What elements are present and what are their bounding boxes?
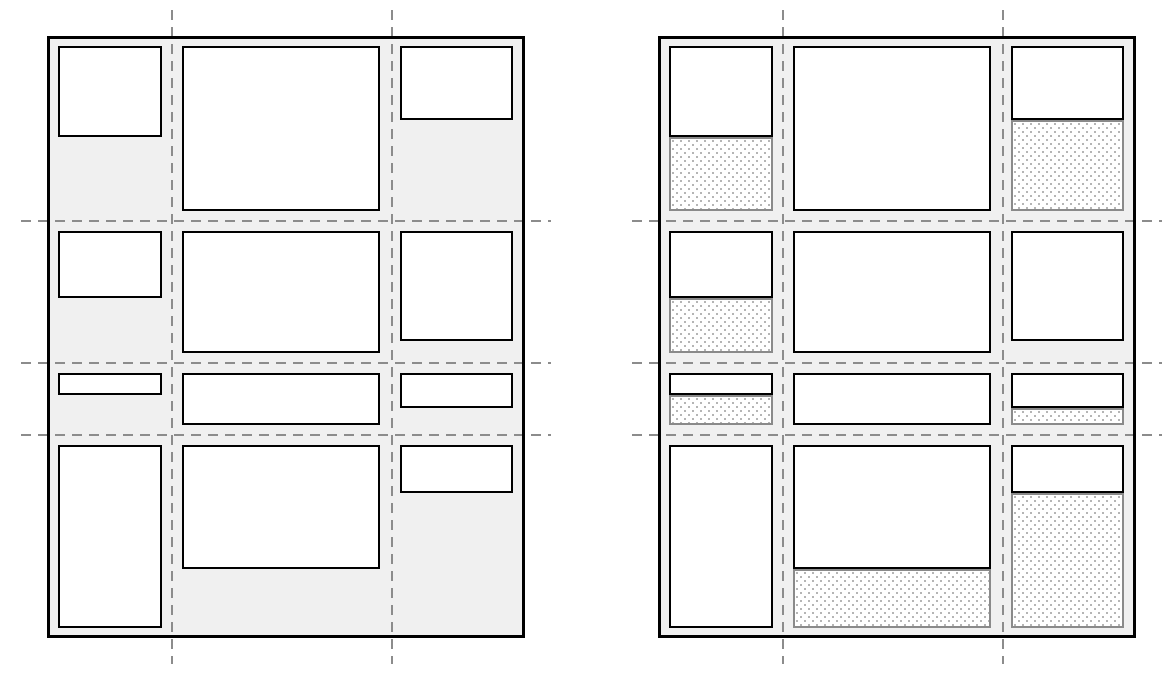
grid-cells-figure-item-r4c2 xyxy=(793,445,991,569)
cell-remainder-r3c1 xyxy=(669,395,773,425)
grid-cells-figure-item-r1c2 xyxy=(793,46,991,211)
cell-remainder-r1c3 xyxy=(1011,120,1124,211)
grid-items-figure-item-r1c3 xyxy=(400,46,513,120)
cell-remainder-r1c1 xyxy=(669,137,773,211)
cell-remainder-r3c3 xyxy=(1011,408,1124,425)
grid-items-figure-item-r4c3 xyxy=(400,445,513,493)
grid-items-figure-item-r1c1 xyxy=(58,46,162,137)
grid-cells-figure-item-r3c2 xyxy=(793,373,991,425)
grid-items-figure-item-r3c1 xyxy=(58,373,162,395)
grid-cells-figure-item-r1c3 xyxy=(1011,46,1124,120)
grid-cells-figure-item-r4c3 xyxy=(1011,445,1124,493)
grid-items-figure-item-r2c2 xyxy=(182,231,380,353)
grid-items-figure-item-r4c1 xyxy=(58,445,162,628)
grid-cells-figure-item-r2c3 xyxy=(1011,231,1124,341)
grid-items-figure-item-r2c3 xyxy=(400,231,513,341)
grid-cells-figure-item-r2c1 xyxy=(669,231,773,298)
grid-cells-figure-item-r2c2 xyxy=(793,231,991,353)
cell-remainder-r4c3 xyxy=(1011,493,1124,628)
cell-remainder-r2c1 xyxy=(669,298,773,353)
grid-items-figure-item-r1c2 xyxy=(182,46,380,211)
grid-items-figure-item-r3c2 xyxy=(182,373,380,425)
grid-cells-figure-item-r4c1 xyxy=(669,445,773,628)
grid-items-figure-item-r3c3 xyxy=(400,373,513,408)
grid-cells-figure-item-r1c1 xyxy=(669,46,773,137)
cell-remainder-r4c2 xyxy=(793,569,991,628)
grid-cells-figure-item-r3c3 xyxy=(1011,373,1124,408)
grid-layout-diagram xyxy=(0,0,1171,679)
grid-cells-figure-item-r3c1 xyxy=(669,373,773,395)
grid-items-figure-item-r4c2 xyxy=(182,445,380,569)
grid-items-figure-item-r2c1 xyxy=(58,231,162,298)
